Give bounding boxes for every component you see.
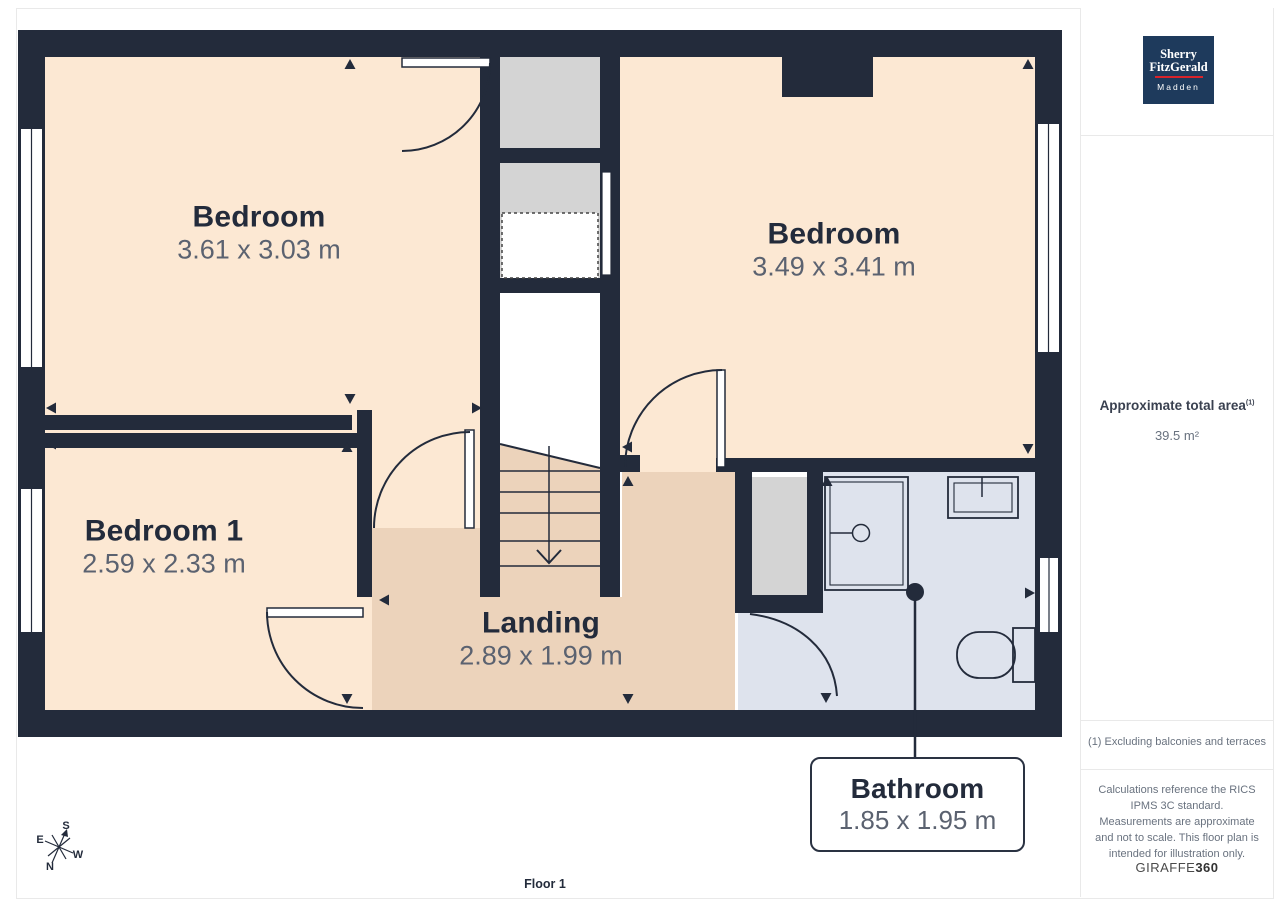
room-name: Landing <box>459 607 623 641</box>
compass-east: E <box>36 834 43 846</box>
compass-north: N <box>46 861 54 873</box>
window-right-bathroom <box>1039 557 1059 633</box>
total-area-label: Approximate total area(1) <box>1081 398 1273 413</box>
brand-suffix: 360 <box>1195 860 1218 875</box>
sidebar-divider <box>1081 769 1273 770</box>
room-dims: 2.59 x 2.33 m <box>82 549 246 580</box>
brand-mark: GIRAFFE360 <box>1081 860 1273 875</box>
logo-line-1: Sherry <box>1160 48 1197 61</box>
sidebar-divider <box>1081 135 1273 136</box>
room-dims: 3.61 x 3.03 m <box>177 235 341 266</box>
room-dims: 3.49 x 3.41 m <box>752 252 916 283</box>
window-left-top <box>20 128 43 368</box>
room-name: Bedroom 1 <box>82 515 246 549</box>
room-dims: 2.89 x 1.99 m <box>459 641 623 672</box>
logo-rule <box>1155 76 1203 78</box>
logo-line-2: FitzGerald <box>1149 61 1207 74</box>
window-right-top <box>1037 123 1060 353</box>
room-label-bedroom-right: Bedroom 3.49 x 3.41 m <box>752 218 916 283</box>
total-area-superscript: (1) <box>1246 400 1255 407</box>
compass-south: S <box>62 820 69 832</box>
room-label-bedroom-1: Bedroom 1 2.59 x 2.33 m <box>82 515 246 580</box>
window-left-bottom <box>20 488 43 633</box>
room-label-bedroom-left: Bedroom 3.61 x 3.03 m <box>177 201 341 266</box>
sidebar-divider <box>1081 720 1273 721</box>
compass-west: W <box>73 849 83 861</box>
room-name: Bedroom <box>177 201 341 235</box>
stairwell-void <box>500 293 600 468</box>
total-area-value: 39.5 m² <box>1081 428 1273 443</box>
disclaimer-text: Calculations reference the RICS IPMS 3C … <box>1081 783 1273 863</box>
agency-logo: Sherry FitzGerald Madden <box>1143 36 1214 104</box>
room-name: Bedroom <box>752 218 916 252</box>
floor-label: Floor 1 <box>524 877 566 891</box>
room-label-bathroom: Bathroom 1.85 x 1.95 m <box>810 757 1025 852</box>
room-name: Bathroom <box>851 773 985 805</box>
total-area-text: Approximate total area <box>1100 398 1246 413</box>
closet-hatch <box>502 213 598 278</box>
closet-door <box>602 172 611 275</box>
compass-rose <box>45 829 73 863</box>
room-dims: 1.85 x 1.95 m <box>839 805 997 836</box>
brand-name: GIRAFFE <box>1135 860 1195 875</box>
area-footnote: (1) Excluding balconies and terraces <box>1081 736 1273 748</box>
room-label-landing: Landing 2.89 x 1.99 m <box>459 607 623 672</box>
floorplan-page: Bedroom 3.61 x 3.03 m Bedroom 3.49 x 3.4… <box>0 0 1280 905</box>
info-sidebar: Sherry FitzGerald Madden Approximate tot… <box>1080 8 1273 897</box>
logo-line-3: Madden <box>1157 82 1200 92</box>
